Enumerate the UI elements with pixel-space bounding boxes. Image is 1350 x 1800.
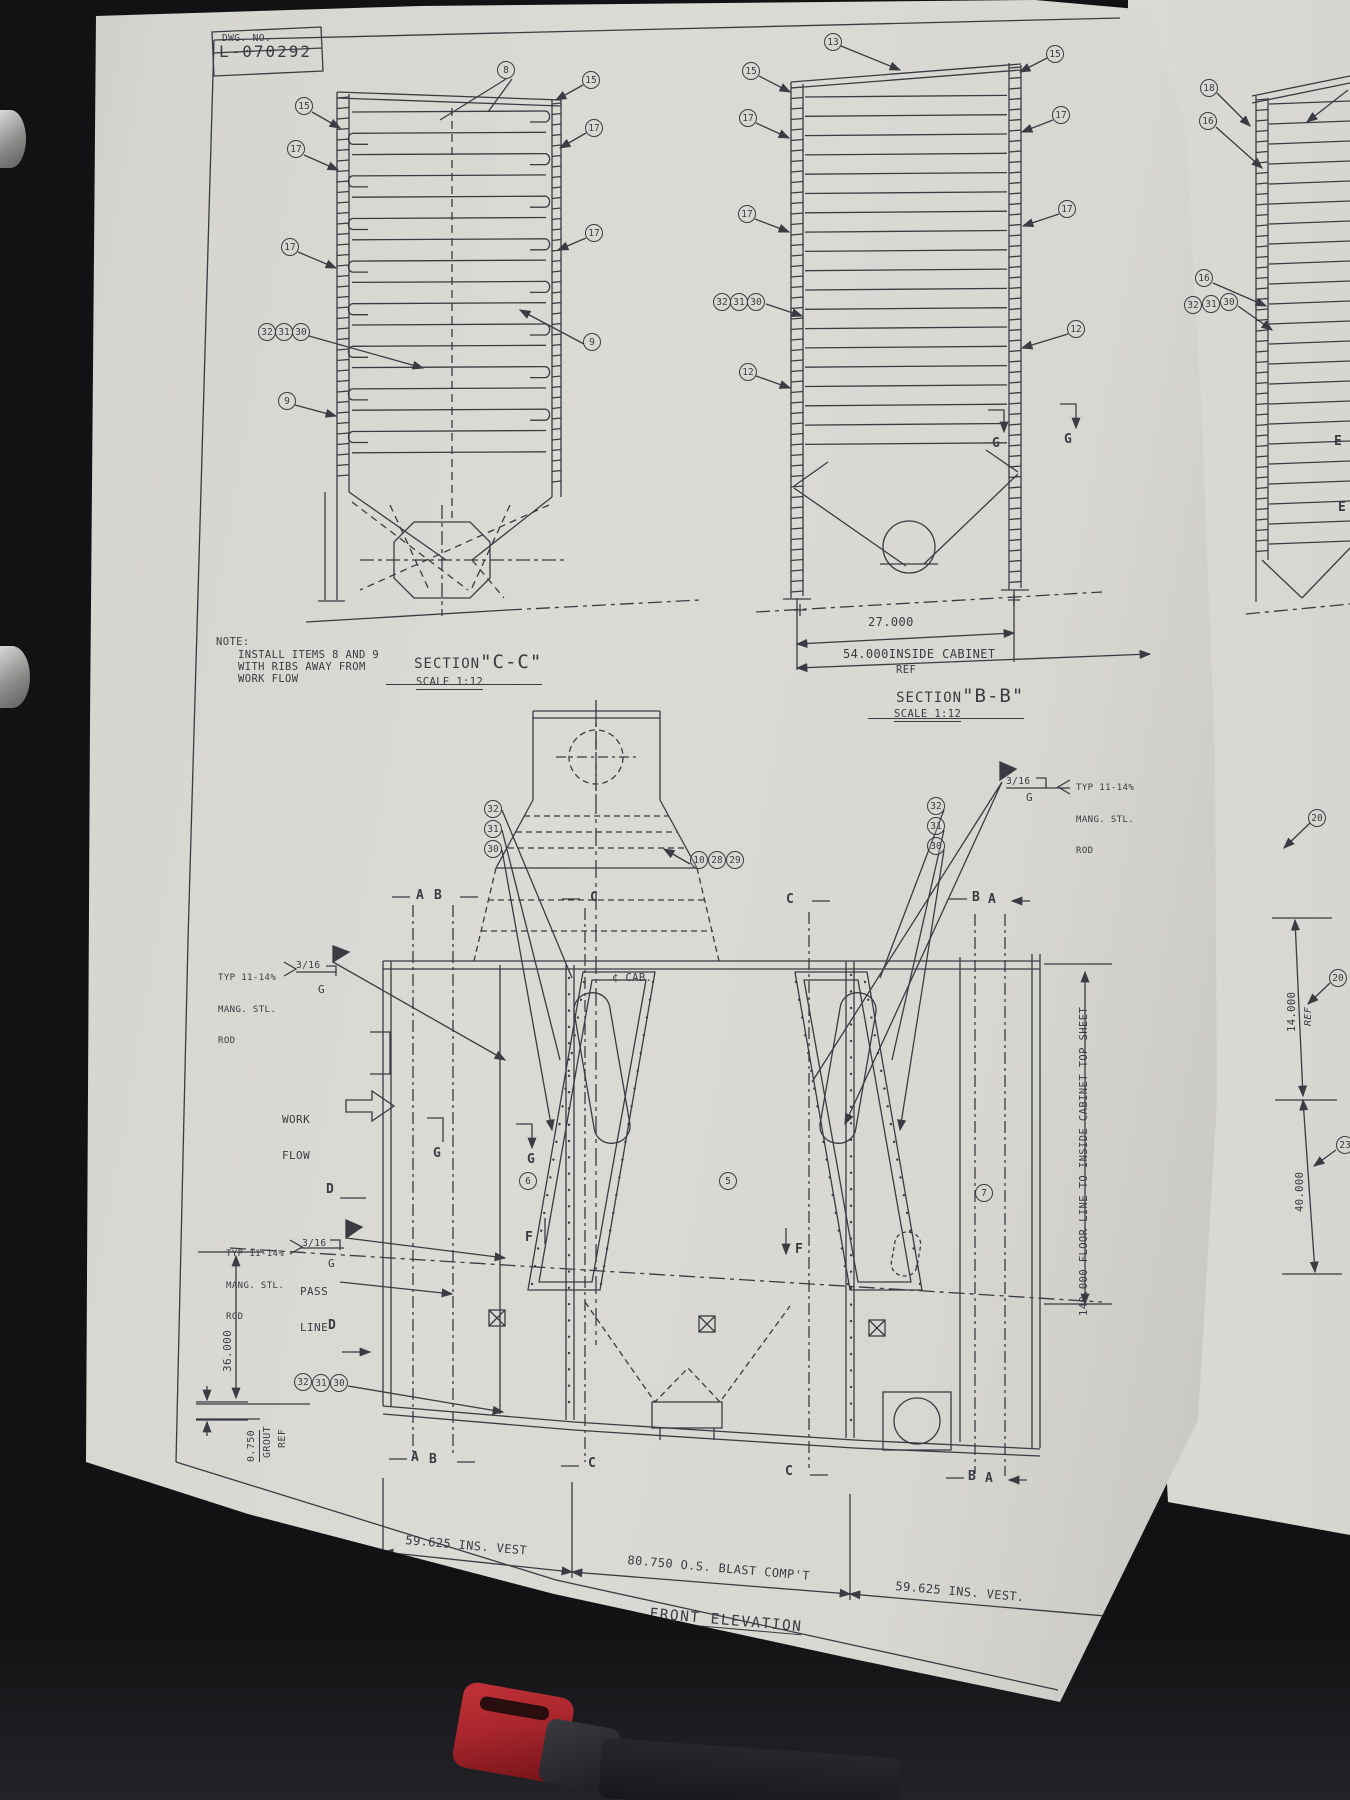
- weld1-l2: MANG. STL.: [218, 1005, 276, 1016]
- weld-note-3: TYP 11-14% MANG. STL. ROD: [1076, 762, 1134, 878]
- section-bb-word: SECTION: [896, 690, 962, 706]
- note-head: NOTE:: [216, 636, 250, 648]
- bb-dim-27: 27.000: [868, 616, 914, 628]
- main-linework: [0, 0, 1350, 1800]
- bb-dim-54: 54.000INSIDE CABINET: [843, 648, 996, 660]
- dwg-no-value: L-070292: [219, 46, 312, 58]
- section-bb-view: [755, 46, 1150, 670]
- note-line3: WORK FLOW: [238, 673, 299, 685]
- weld1-size: 3/16: [296, 960, 320, 972]
- weld3-size: 3/16: [1006, 776, 1030, 788]
- weld3-l3: ROD: [1076, 846, 1134, 857]
- weld2-l1: TYP 11-14%: [226, 1249, 284, 1260]
- section-bb-name: "B-B": [962, 685, 1024, 707]
- bb-dim-ref: REF: [896, 664, 916, 676]
- section-bb-scale: SCALE 1:12: [894, 708, 961, 722]
- grout-ref-word: REF: [277, 1429, 289, 1448]
- weld2-process: G: [328, 1258, 335, 1270]
- weld1-process: G: [318, 984, 325, 996]
- work-word: WORK: [282, 1114, 310, 1126]
- binder-ring-top: [0, 110, 26, 168]
- weld-note-1: TYP 11-14% MANG. STL. ROD: [218, 952, 276, 1068]
- section-cc-word: SECTION: [414, 656, 480, 672]
- dim-40000: 40.000: [1294, 1172, 1306, 1212]
- pass-line-note: PASS LINE: [300, 1262, 328, 1358]
- note-line2: WITH RIBS AWAY FROM: [238, 661, 366, 673]
- cab-centerline-label: ¢ CAB.: [612, 972, 652, 984]
- note-line1: INSTALL ITEMS 8 AND 9: [238, 649, 379, 661]
- pass-word: PASS: [300, 1286, 328, 1298]
- weld3-l1: TYP 11-14%: [1076, 783, 1134, 794]
- weld1-l1: TYP 11-14%: [218, 973, 276, 984]
- weld2-l3: ROD: [226, 1312, 284, 1323]
- flow-word: FLOW: [282, 1150, 310, 1162]
- binder-ring-bottom: [0, 646, 30, 708]
- dim-36000: 36.000: [222, 1330, 234, 1372]
- photo-of-engineering-drawing: { "ink": "#3b3b43", "paper": "#d8d7d2", …: [0, 0, 1350, 1800]
- section-cc-scale: SCALE 1:12: [416, 676, 483, 690]
- section-cc-name: "C-C": [480, 651, 542, 673]
- weld3-l2: MANG. STL.: [1076, 815, 1134, 826]
- line-word: LINE: [300, 1322, 328, 1334]
- drawing-sheet: DWG. NO. L-070292 NOTE: INSTALL ITEMS 8 …: [0, 0, 1350, 1800]
- dim-140000: 140.000 FLOOR LINE TO INSIDE CABINET TOP…: [1078, 1007, 1090, 1316]
- weld-note-2: TYP 11-14% MANG. STL. ROD: [226, 1228, 284, 1344]
- dim-14000: 14.000: [1286, 992, 1298, 1032]
- work-flow-note: WORK FLOW: [282, 1090, 310, 1186]
- weld3-process: G: [1026, 792, 1033, 804]
- dim-14000-ref: REF: [1303, 1007, 1315, 1026]
- dim-0750: 0.750: [246, 1430, 260, 1462]
- weld2-l2: MANG. STL.: [226, 1281, 284, 1292]
- weld2-size: 3/16: [302, 1238, 326, 1250]
- grout-word: GROUT: [262, 1426, 274, 1458]
- weld1-l3: ROD: [218, 1036, 276, 1047]
- section-cc-view: [295, 79, 700, 622]
